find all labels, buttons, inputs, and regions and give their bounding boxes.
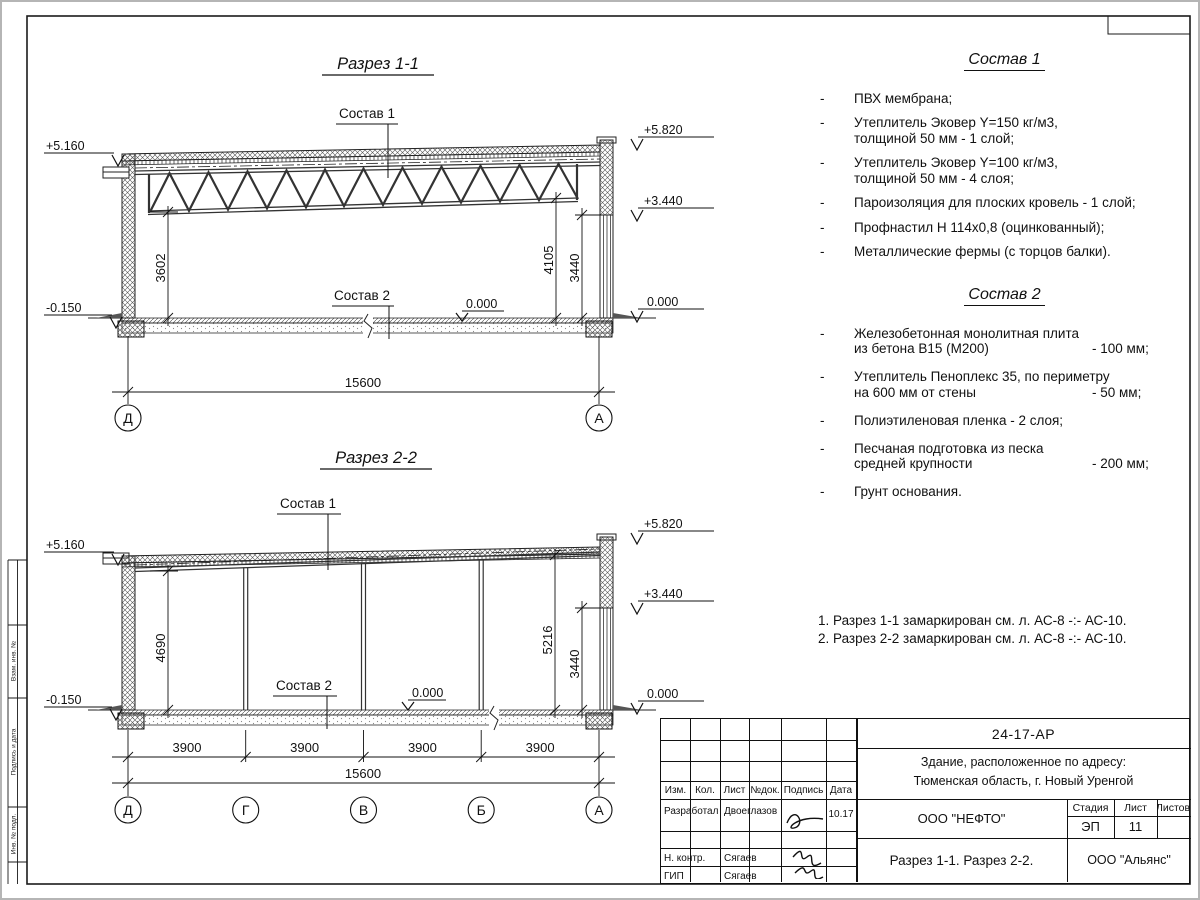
dim-s2-bay-3: 3900 [408, 740, 437, 755]
composition1-list: Состав 1 - ПВХ мембрана; - Утеплитель Эк… [812, 52, 1197, 269]
col-ndok: №док. [749, 781, 781, 799]
col-list: Лист [720, 781, 749, 799]
axis-s2-1: Д [123, 802, 133, 818]
elev-s1-right-mid: +3.440 [644, 194, 683, 208]
floor-screed [122, 710, 613, 715]
list-item: - Профнастил Н 114х0,8 (оцинкованный); [812, 220, 1197, 236]
list-item: - Грунт основания. [812, 484, 1197, 500]
note-line-1: 1. Разрез 1-1 замаркирован см. л. АС-8 -… [818, 612, 1127, 630]
dim-s1-right-inner: 4105 [541, 246, 556, 275]
sheets-label: Листов [1157, 800, 1189, 815]
axis-s2-3: В [359, 802, 368, 818]
col-data: Дата [826, 781, 856, 799]
contractor-name: ООО "Альянс" [1067, 838, 1191, 882]
dash-bullet: - [812, 155, 854, 186]
elev-s1-right-top: +5.820 [644, 123, 683, 137]
drawing-sheet: Взам. инв. № Подпись и дата Инв. № подл.… [0, 0, 1200, 900]
doc-number: 24-17-АР [856, 721, 1191, 746]
role-developed: Разработал [661, 803, 723, 819]
dim-s2-right-inner: 5216 [540, 626, 555, 655]
section2-comp2-label: Состав 2 [276, 678, 332, 693]
composition2-title: Состав 2 [812, 287, 1197, 306]
section1-comp1-label: Состав 1 [339, 106, 395, 121]
axis-s1-right: А [594, 410, 604, 426]
elev-s2-left-bottom: -0.150 [46, 693, 81, 707]
dim-s1-span: 15600 [345, 375, 381, 390]
signature-strokes [781, 799, 827, 879]
sheet-value: 11 [1114, 816, 1157, 837]
list-item: - Полиэтиленовая пленка - 2 слоя; [812, 413, 1197, 429]
footing-left [118, 321, 144, 337]
list-item: - Пароизоляция для плоских кровель - 1 с… [812, 195, 1197, 211]
elev-s2-right-top: +5.820 [644, 517, 683, 531]
name-developed: Двоеглазов [721, 803, 784, 819]
section-2-2-drawing: Разрез 2-2 [44, 449, 714, 823]
title-block: Изм. Кол. Лист №док. Подпись Дата Разраб… [660, 718, 1190, 884]
stage-value: ЭП [1067, 816, 1114, 837]
dash-bullet: - [812, 115, 854, 146]
section1-span-dim [112, 336, 615, 404]
name-gip: Сягаев [721, 868, 784, 884]
dash-bullet: - [812, 484, 854, 500]
dash-bullet: - [812, 91, 854, 107]
sheet-label: Лист [1114, 800, 1157, 815]
object-address-2: Тюменская область, г. Новый Уренгой [856, 769, 1191, 793]
section2-vertical-dims [150, 549, 602, 718]
side-stamp-label-1: Взам. инв. № [11, 641, 18, 681]
dim-s2-span: 15600 [345, 766, 381, 781]
dash-bullet: - [812, 220, 854, 236]
list-item: - Утеплитель Эковер Y=150 кг/м3,толщиной… [812, 115, 1197, 146]
col-podpis: Подпись [781, 781, 826, 799]
elev-s2-right-zero: 0.000 [647, 687, 678, 701]
sheets-value [1157, 816, 1189, 837]
section1-comp2-label: Состав 2 [334, 288, 390, 303]
col-izm: Изм. [661, 781, 690, 799]
dim-s2-right-wall: 3440 [567, 650, 582, 679]
side-stamp-label-3: Инв. № подл. [11, 814, 18, 855]
role-ncontrol: Н. контр. [661, 850, 723, 866]
note-line-2: 2. Разрез 2-2 замаркирован см. л. АС-8 -… [818, 630, 1127, 648]
composition1-title: Состав 1 [812, 52, 1197, 71]
elev-s1-right-zero: 0.000 [647, 295, 678, 309]
axis-s2-4: Б [477, 802, 486, 818]
dash-bullet: - [812, 244, 854, 260]
dim-s2-left-height: 4690 [153, 634, 168, 663]
footing-right [586, 713, 612, 729]
dim-s1-left-height: 3602 [153, 254, 168, 283]
list-item: - Песчаная подготовка из песка средней к… [812, 441, 1197, 472]
role-gip: ГИП [661, 868, 723, 884]
list-item: - Утеплитель Пеноплекс 35, по периметру … [812, 369, 1197, 400]
section1-floor-zero: 0.000 [466, 297, 497, 311]
wall-left [122, 154, 135, 318]
company-name: ООО "НЕФТО" [856, 801, 1067, 836]
axis-s2-5: А [594, 802, 604, 818]
dash-bullet: - [812, 195, 854, 211]
roof-truss [135, 162, 600, 215]
parapet-right [600, 537, 613, 608]
side-stamp-label-2: Подпись и дата [11, 728, 18, 775]
section2-floor-zero: 0.000 [412, 686, 443, 700]
list-item: - Утеплитель Эковер Y=100 кг/м3,толщиной… [812, 155, 1197, 186]
wall-right-lower [600, 608, 613, 710]
dash-bullet: - [812, 441, 854, 472]
elev-s1-left-bottom: -0.150 [46, 301, 81, 315]
stage-label: Стадия [1067, 800, 1114, 815]
parapet-right [600, 140, 613, 215]
section1-title: Разрез 1-1 [337, 55, 419, 73]
date-developed: 10.17 [826, 807, 856, 821]
dim-s2-bay-1: 3900 [173, 740, 202, 755]
dim-s2-bay-2: 3900 [290, 740, 319, 755]
floor-slab [122, 715, 613, 725]
list-item: - Металлические фермы (с торцов балки). [812, 244, 1197, 260]
section2-title: Разрез 2-2 [335, 449, 417, 467]
footing-left [118, 713, 144, 729]
footing-right [586, 321, 612, 337]
dash-bullet: - [812, 369, 854, 400]
corner-box [1108, 16, 1190, 34]
axis-s1-left: Д [123, 410, 133, 426]
list-item: - Железобетонная монолитная плита из бет… [812, 326, 1197, 357]
drawing-title: Разрез 1-1. Разрез 2-2. [856, 838, 1067, 882]
section2-comp1-label: Состав 1 [280, 496, 336, 511]
list-item: - ПВХ мембрана; [812, 91, 1197, 107]
dash-bullet: - [812, 326, 854, 357]
elev-s1-left-top: +5.160 [46, 139, 85, 153]
dash-bullet: - [812, 413, 854, 429]
name-ncontrol: Сягаев [721, 850, 784, 866]
notes: 1. Разрез 1-1 замаркирован см. л. АС-8 -… [818, 612, 1127, 647]
section-1-1-drawing: Разрез 1-1 [44, 55, 714, 431]
dim-s2-bay-4: 3900 [526, 740, 555, 755]
composition2-list: Состав 2 - Железобетонная монолитная пли… [812, 287, 1197, 512]
col-kol: Кол. [690, 781, 720, 799]
dim-s1-right-wall: 3440 [567, 254, 582, 283]
wall-left [122, 556, 135, 710]
axis-s2-2: Г [242, 802, 250, 818]
elev-s2-right-mid: +3.440 [644, 587, 683, 601]
elev-s2-left-top: +5.160 [46, 538, 85, 552]
wall-right-lower [600, 215, 613, 318]
